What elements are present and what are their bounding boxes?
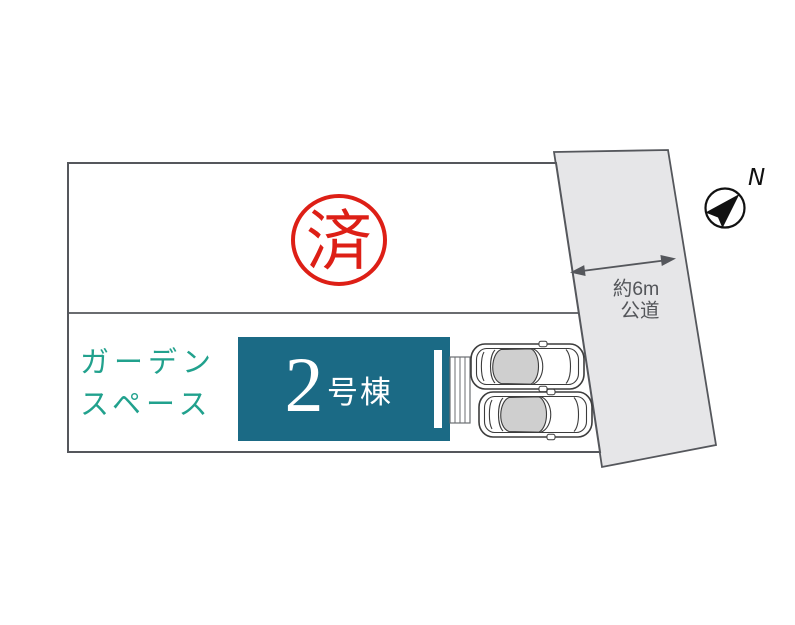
- building-2-number: 2: [285, 341, 324, 428]
- garden-space-label-line2: スペース: [80, 389, 213, 421]
- site-plan-canvas: 済 ガーデン スペース 2 号棟: [0, 0, 795, 625]
- building-2-bottom-stub: [434, 428, 442, 441]
- car-icon-2: [479, 389, 592, 440]
- compass-north-label: N: [748, 165, 765, 191]
- sold-stamp: 済: [293, 196, 385, 284]
- garden-space-label-line1: ガーデン: [80, 346, 216, 379]
- compass: N: [706, 165, 766, 228]
- road-width-label: 約6m: [613, 278, 660, 300]
- site-plan-diagram: 済 ガーデン スペース 2 号棟: [0, 0, 795, 625]
- entrance-steps: [450, 357, 470, 423]
- building-2-edge-bar: [442, 337, 450, 441]
- building-2-suffix: 号棟: [327, 375, 393, 410]
- building-2-top-stub: [434, 337, 442, 350]
- sold-stamp-text: 済: [306, 206, 372, 279]
- road-type-label: 公道: [620, 300, 659, 322]
- car-icon-1: [471, 341, 584, 392]
